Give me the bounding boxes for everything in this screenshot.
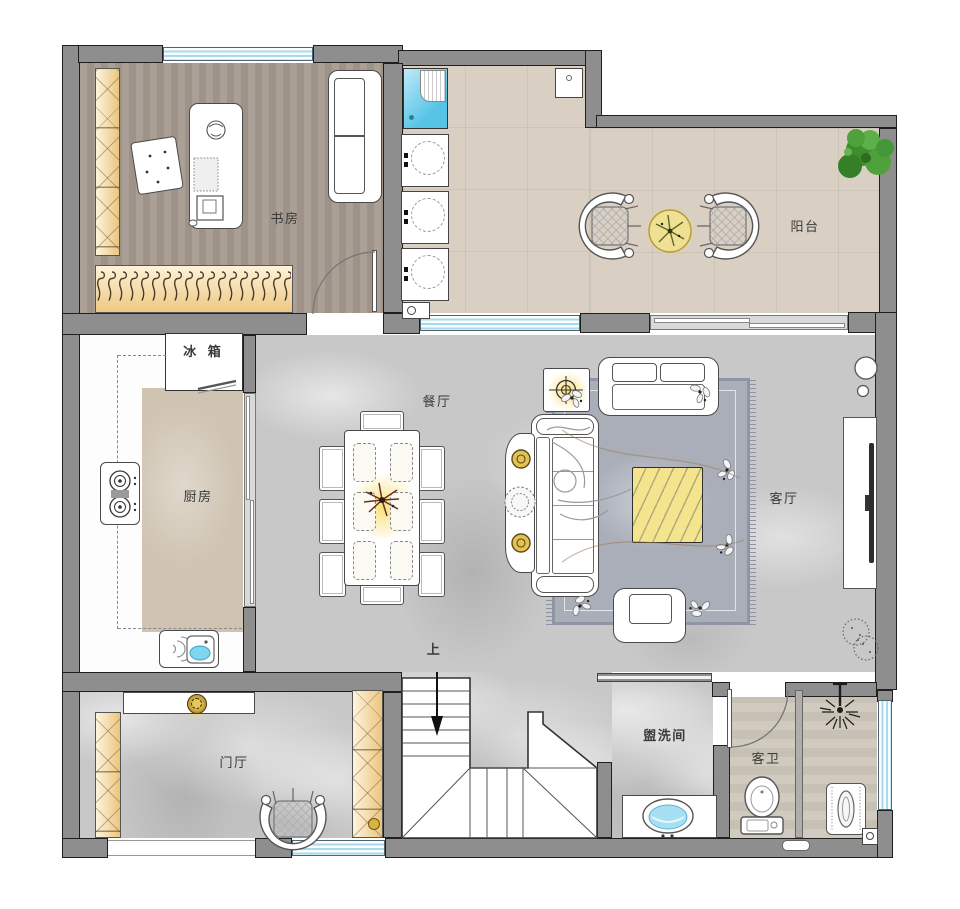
study-chair-dots — [146, 151, 170, 184]
rug-decor — [560, 378, 744, 622]
washroom-basin — [643, 799, 693, 838]
guest-bath-label: 客卫 — [736, 751, 796, 767]
entry-wicker-chair — [260, 788, 326, 850]
person-figure — [547, 427, 631, 520]
bath-door-swing — [731, 690, 788, 747]
study-door-swing — [313, 252, 375, 314]
wall-decor-circles — [855, 357, 877, 397]
entry-label: 门厅 — [204, 755, 264, 771]
kitchen-sink-detail — [173, 636, 214, 663]
desk-items — [189, 121, 225, 226]
stairs-up-label: 上 — [419, 642, 449, 658]
wicker-chair — [579, 193, 641, 259]
staircase — [402, 672, 597, 838]
fridge-handle — [198, 381, 236, 393]
dining-label: 餐厅 — [407, 394, 467, 410]
console-decor-plate — [505, 487, 535, 517]
study-label: 书房 — [255, 211, 315, 227]
balcony-label: 阳台 — [775, 219, 835, 235]
living-label: 客厅 — [754, 491, 814, 507]
shower-tray-detail — [832, 787, 860, 831]
stove-burners — [110, 471, 136, 517]
floor-plan: 冰 箱 — [0, 0, 960, 909]
dining-centerpiece-icon — [364, 483, 399, 516]
balcony-tree-icon — [838, 129, 894, 178]
tv-bracket — [865, 495, 869, 511]
corner-plant-icon — [843, 619, 878, 660]
lineart-overlay — [0, 0, 960, 909]
balcony-round-table — [649, 210, 691, 252]
washroom-label: 盥洗间 — [625, 728, 705, 744]
toilet — [741, 777, 783, 834]
shower-head-icon — [820, 683, 860, 729]
kitchen-label: 厨房 — [168, 489, 228, 505]
wicker-chair — [697, 193, 759, 259]
